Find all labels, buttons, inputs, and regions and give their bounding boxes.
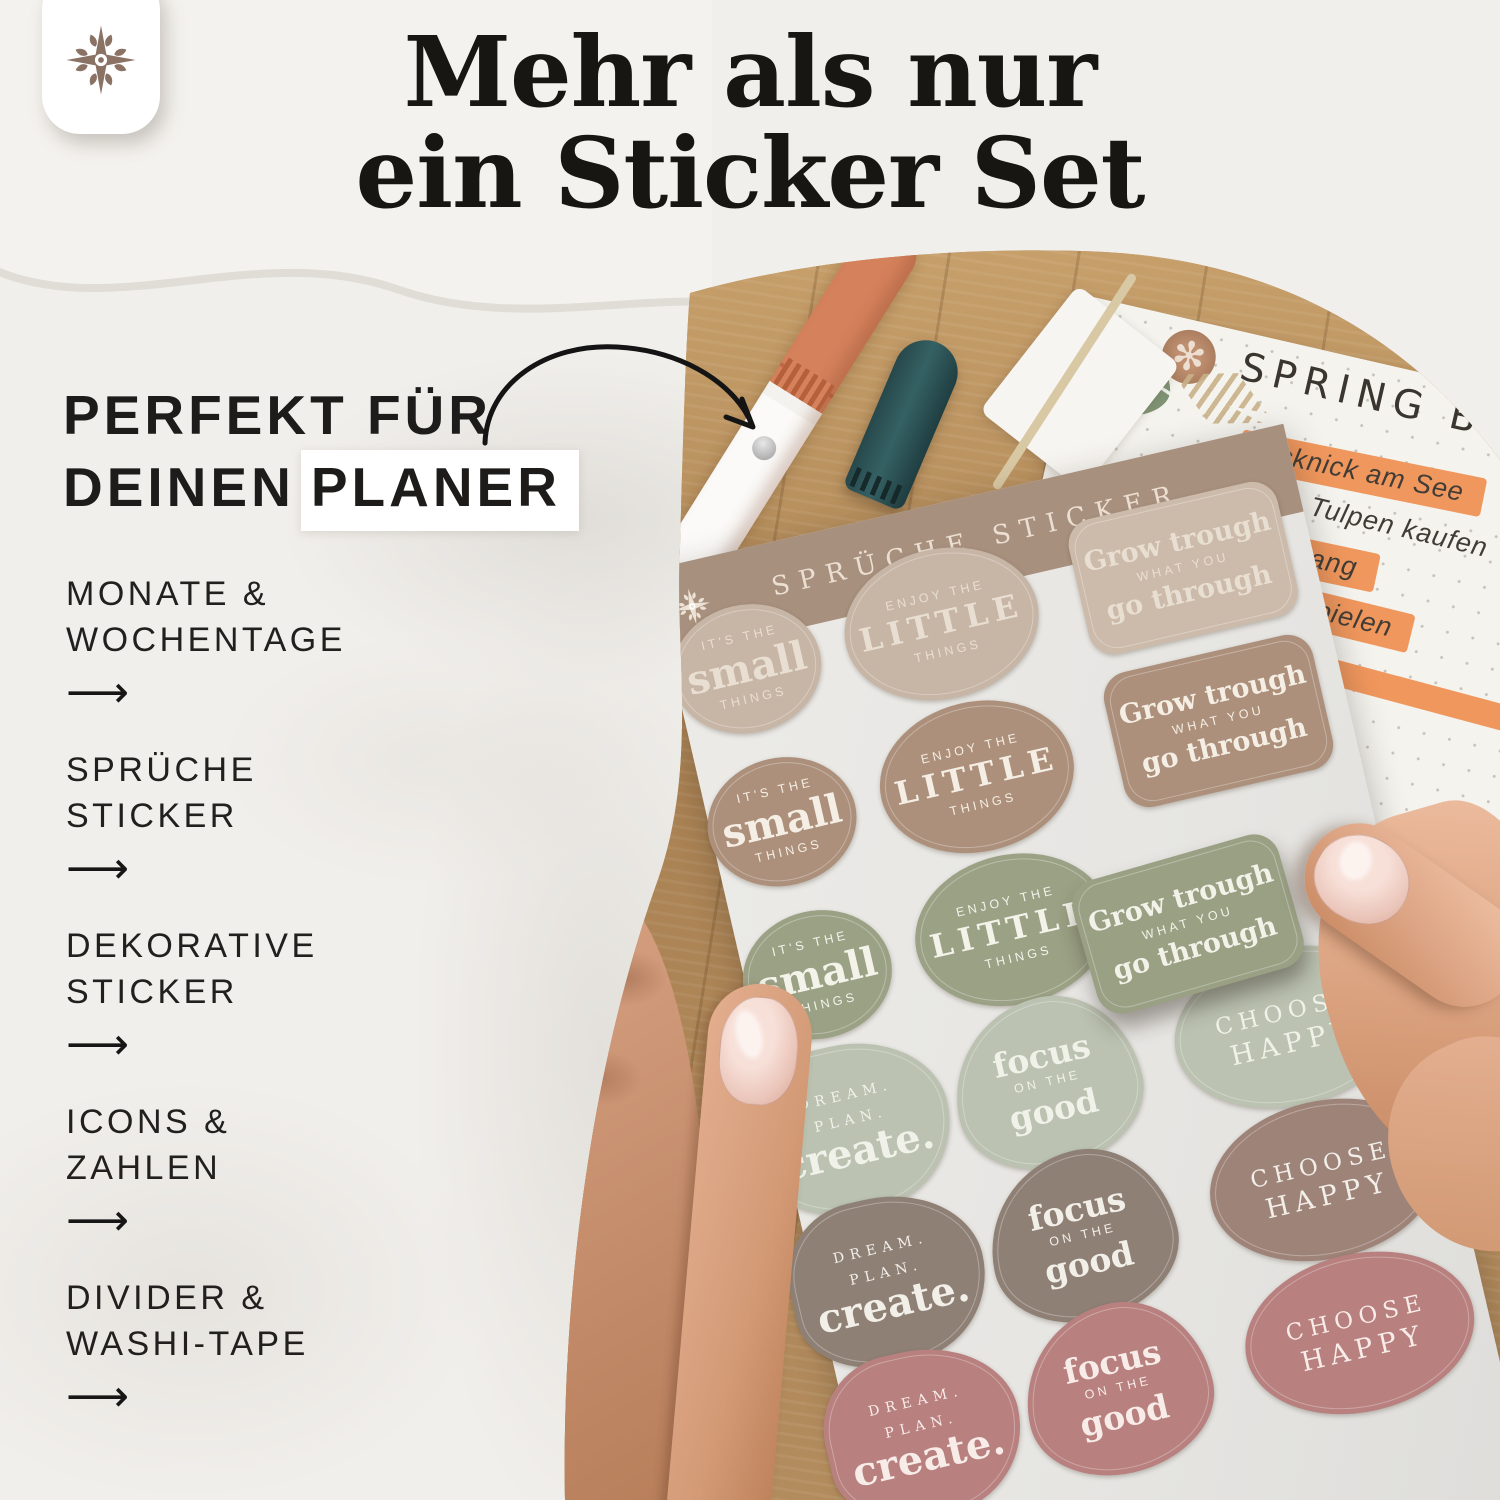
pen-logo-dot: [748, 432, 781, 465]
sticker-text: focus: [1060, 1335, 1164, 1389]
subtitle-word: DEINEN: [63, 456, 295, 518]
sticker-text: ON THE: [1083, 1371, 1154, 1407]
sticker-text: ENJOY THE: [884, 575, 987, 618]
feature-line: ICONS &: [66, 1100, 346, 1146]
subtitle-line-1: PERFEKT FÜR: [63, 380, 579, 450]
sticker-text: LITTLE: [856, 588, 1026, 660]
product-photo: ✻ SPRING BUCKET Picknick am Seefrische T…: [560, 248, 1500, 1500]
sticker-text: THINGS: [983, 939, 1054, 975]
sticker-text: go through: [1139, 712, 1310, 779]
feature-item: SPRÜCHESTICKER⟶: [66, 748, 346, 891]
sticker-text: THINGS: [753, 834, 824, 870]
sticker-text: DREAM.: [831, 1226, 931, 1272]
sticker-text: go through: [1110, 911, 1281, 987]
sticker-text: good: [1006, 1083, 1101, 1135]
sticker-text: good: [1077, 1389, 1172, 1441]
sticker-text: create.: [814, 1267, 974, 1342]
sticker-text: HAPPY: [1298, 1321, 1429, 1379]
feature-line: SPRÜCHE: [66, 748, 346, 794]
sticker-text: DREAM.: [866, 1379, 966, 1425]
sticker-text: ON THE: [1047, 1218, 1118, 1254]
sticker-text: THINGS: [948, 786, 1019, 822]
sticker-text: WHAT YOU: [1170, 700, 1266, 742]
feature-line: ZAHLEN: [66, 1146, 346, 1192]
sticker-text: ENJOY THE: [919, 728, 1022, 771]
arrow-right-icon: ⟶: [66, 671, 346, 715]
feature-item: ICONS &ZAHLEN⟶: [66, 1100, 346, 1243]
feature-item: MONATE &WOCHENTAGE⟶: [66, 572, 346, 715]
feature-line: STICKER: [66, 794, 346, 840]
arrow-right-icon: ⟶: [66, 1023, 346, 1067]
page-title: Mehr als nur ein Sticker Set: [0, 22, 1500, 224]
sticker-text: go through: [1103, 559, 1274, 626]
feature-line: WOCHENTAGE: [66, 618, 346, 664]
feature-item: DEKORATIVESTICKER⟶: [66, 924, 346, 1067]
feature-item: DIVIDER &WASHI-TAPE⟶: [66, 1276, 346, 1419]
section-heading: PERFEKT FÜR DEINENPLANER: [63, 380, 579, 531]
arrow-right-icon: ⟶: [66, 1199, 346, 1243]
teal-pen-cap: [842, 330, 967, 511]
cap-ribs: [849, 467, 905, 506]
sticker-text: THINGS: [718, 681, 789, 717]
sticker-text: focus: [1025, 1182, 1129, 1236]
arrow-right-icon: ⟶: [66, 847, 346, 891]
sticker-text: Grow trough: [1116, 660, 1309, 732]
sticker-text: IT'S THE: [699, 619, 780, 657]
pen-grip-ribs: [773, 358, 835, 412]
feature-line: DEKORATIVE: [66, 924, 346, 970]
sticker-choose: CHOOSEHAPPY: [1229, 1230, 1491, 1436]
sticker-text: PLAN.: [847, 1252, 925, 1293]
feature-line: STICKER: [66, 970, 346, 1016]
sticker-text: LITTLE: [892, 741, 1062, 813]
sticker-grow: Grow troughWHAT YOUgo through: [1099, 630, 1339, 813]
feature-list: MONATE &WOCHENTAGE⟶SPRÜCHESTICKER⟶DEKORA…: [66, 572, 346, 1452]
sticker-text: PLAN.: [882, 1405, 960, 1446]
sticker-text: IT'S THE: [735, 772, 816, 810]
sticker-text: THINGS: [912, 633, 983, 669]
feature-line: WASHI-TAPE: [66, 1322, 346, 1368]
sticker-text: HAPPY: [1263, 1168, 1394, 1226]
sticker-little: ENJOY THELITTLETHINGS: [865, 682, 1090, 872]
sticker-small: IT'S THEsmallTHINGS: [695, 743, 870, 901]
marketing-graphic: Mehr als nur ein Sticker Set PERFEKT FÜR…: [0, 0, 1500, 1500]
sticker-text: CHOOSE: [1247, 1132, 1395, 1198]
sticker-text: small: [718, 788, 845, 855]
sticker-text: WHAT YOU: [1140, 901, 1236, 947]
sticker-text: ON THE: [1012, 1065, 1083, 1101]
sticker-text: DREAM.: [795, 1073, 895, 1119]
arrow-right-icon: ⟶: [66, 1375, 346, 1419]
sticker-text: good: [1041, 1236, 1136, 1288]
sticker-text: WHAT YOU: [1135, 547, 1231, 589]
sticker-text: IT'S THE: [770, 925, 851, 963]
feature-line: DIVIDER &: [66, 1276, 346, 1322]
sticker-text: PLAN.: [812, 1099, 890, 1140]
sticker-text: focus: [990, 1029, 1094, 1083]
sticker-text: Grow trough: [1081, 507, 1274, 579]
subtitle-line-2: DEINENPLANER: [63, 450, 579, 530]
sticker-text: ENJOY THE: [954, 881, 1057, 924]
feature-line: MONATE &: [66, 572, 346, 618]
left-thumbnail: [715, 994, 802, 1108]
title-line-1: Mehr als nur: [0, 22, 1500, 123]
title-line-2: ein Sticker Set: [0, 123, 1500, 224]
sticker-text: CHOOSE: [1282, 1285, 1430, 1351]
highlighted-word: PLANER: [301, 450, 579, 530]
sticker-text: small: [683, 635, 810, 702]
sticker-text: create.: [849, 1420, 1009, 1495]
